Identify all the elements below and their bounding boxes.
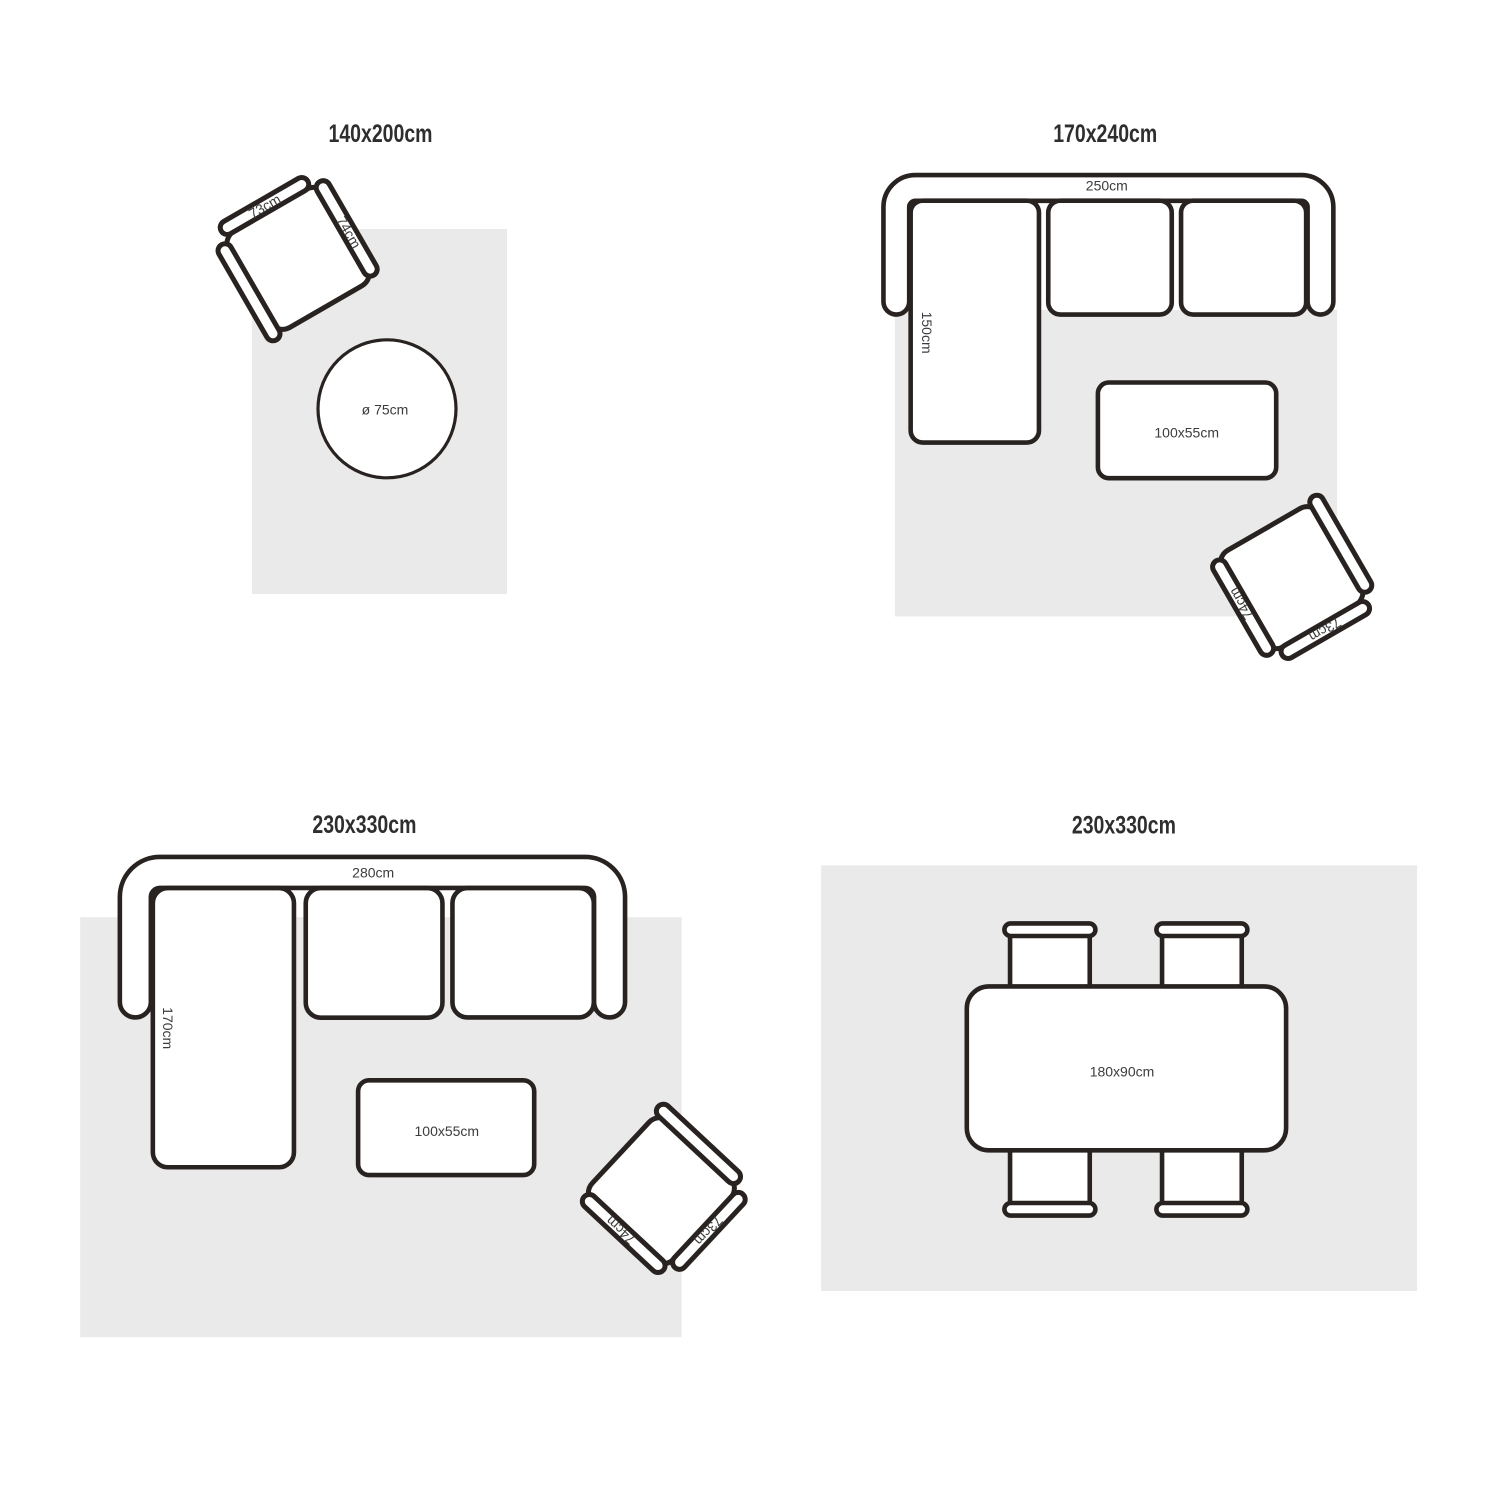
svg-text:250cm: 250cm: [1086, 178, 1128, 194]
svg-text:ø 75cm: ø 75cm: [362, 402, 409, 418]
svg-text:170x240cm: 170x240cm: [1053, 120, 1157, 148]
svg-text:100x55cm: 100x55cm: [1154, 424, 1219, 440]
svg-text:140x200cm: 140x200cm: [329, 120, 433, 148]
svg-text:150cm: 150cm: [919, 312, 935, 354]
svg-text:170cm: 170cm: [160, 1007, 176, 1049]
svg-text:100x55cm: 100x55cm: [415, 1123, 480, 1139]
svg-text:230x330cm: 230x330cm: [312, 811, 416, 839]
svg-text:280cm: 280cm: [352, 864, 394, 880]
svg-text:180x90cm: 180x90cm: [1090, 1063, 1155, 1079]
svg-text:230x330cm: 230x330cm: [1072, 811, 1176, 839]
